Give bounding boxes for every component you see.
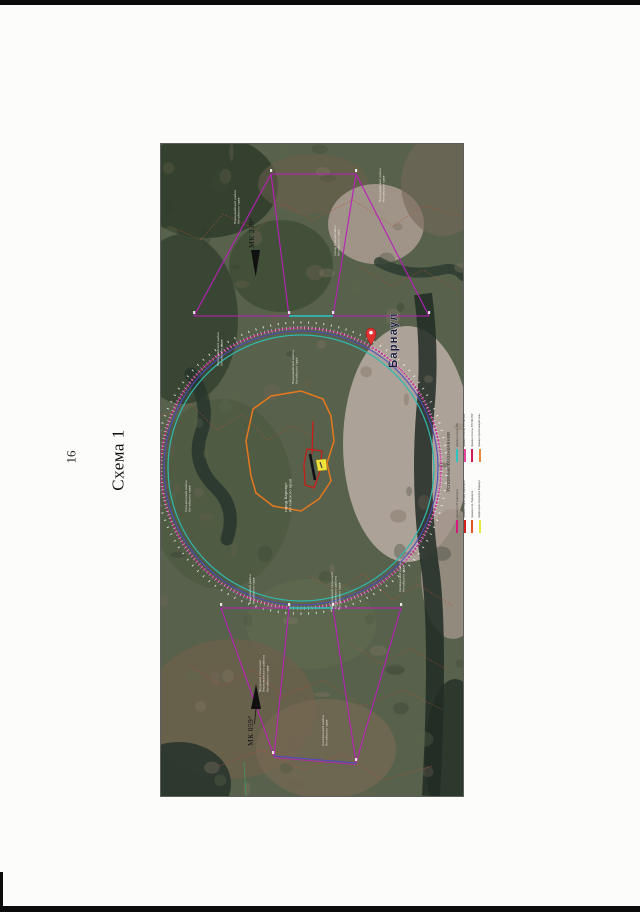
legend-swatch xyxy=(464,520,466,533)
legend-column: граница СЗЗ аэропортаграница территории … xyxy=(455,480,482,533)
legend-label: граница прилегающей зоны xyxy=(478,414,481,448)
area-label: Косихинский районАлтайского края xyxy=(321,715,329,746)
terrain-speck xyxy=(320,174,336,182)
terrain-speck xyxy=(432,547,451,561)
area-label: Калманский районАлтайского края xyxy=(398,562,406,592)
ring-tick-number xyxy=(263,326,264,328)
terrain-speck xyxy=(204,762,220,774)
terrain-speck xyxy=(165,201,173,215)
course-top-label: МК 239° xyxy=(247,217,256,248)
legend-label: граница полосы ВП xyxy=(456,423,459,447)
terrain-speck xyxy=(397,303,404,312)
legend-label: граница полосы ВП МК 239° xyxy=(463,413,466,447)
terrain-speck xyxy=(214,170,229,185)
legend-swatch xyxy=(479,520,481,533)
corner-mark xyxy=(332,311,334,314)
city-label: Барнаул xyxy=(388,312,400,368)
terrain-speck xyxy=(243,782,250,795)
terrain-speck xyxy=(171,552,186,558)
terrain-speck xyxy=(285,779,305,789)
legend-item: граница гор. Барнаула xyxy=(470,480,474,533)
terrain-speck xyxy=(280,145,290,157)
terrain-speck xyxy=(231,544,237,556)
corner-mark xyxy=(355,169,357,172)
corner-mark xyxy=(270,169,272,172)
terrain-speck xyxy=(348,280,364,293)
terrain-speck xyxy=(317,340,326,348)
terrain-speck xyxy=(319,268,335,277)
terrain-speck xyxy=(315,692,331,697)
terrain-speck xyxy=(163,162,175,174)
legend-label: граница гор. Барнаула xyxy=(471,491,474,518)
terrain-speck xyxy=(288,736,299,754)
legend-swatch xyxy=(464,449,466,462)
legend-item: граница полосы ВП МК 059° xyxy=(470,413,474,462)
terrain-speck xyxy=(305,378,314,387)
corner-mark xyxy=(288,311,290,314)
legend-title: Условные обозначения xyxy=(446,387,452,537)
terrain-speck xyxy=(404,393,409,405)
terrain-speck xyxy=(370,646,388,656)
corner-mark xyxy=(193,311,195,314)
legend-columns: граница СЗЗ аэропортаграница территории … xyxy=(455,387,482,537)
terrain-speck xyxy=(200,513,214,522)
terrain-speck xyxy=(424,375,433,383)
legend-item: граница полосы ВП МК 239° xyxy=(463,413,467,462)
legend-swatch xyxy=(479,449,481,462)
terrain-speck xyxy=(378,253,395,268)
terrain-speck xyxy=(387,666,405,675)
terrain-speck xyxy=(202,228,211,245)
terrain-speck xyxy=(244,615,253,626)
terrain-speck xyxy=(222,669,234,682)
legend-item: территория аэропорта Барнаул xyxy=(478,480,482,533)
page-number: 16 xyxy=(64,451,80,464)
legend-label: граница СЗЗ аэропорта xyxy=(456,489,459,518)
course-bottom-label: МК 059° xyxy=(246,715,255,746)
terrain-speck xyxy=(270,312,280,325)
terrain-speck xyxy=(184,671,202,681)
terrain-speck xyxy=(194,488,204,498)
terrain-speck xyxy=(283,617,299,624)
legend-label: граница территории аэропорта xyxy=(463,481,466,518)
corner-mark xyxy=(220,603,222,606)
terrain-speck xyxy=(163,227,177,236)
corner-mark xyxy=(272,751,274,754)
terrain-speck xyxy=(214,775,226,786)
map-legend: Условные обозначения граница СЗЗ аэропор… xyxy=(446,387,504,537)
legend-item: граница территории аэропорта xyxy=(463,480,467,533)
area-label: Павловский районАлтайского края xyxy=(248,574,256,604)
terrain-speck xyxy=(360,366,372,377)
scan-edge-left xyxy=(0,872,3,912)
terrain-speck xyxy=(219,400,232,412)
scan-edge-top xyxy=(0,0,640,5)
legend-swatch xyxy=(456,449,458,462)
terrain-speck xyxy=(390,510,406,523)
corner-mark xyxy=(355,758,357,761)
ring-tick-number xyxy=(441,430,443,431)
legend-item: граница СЗЗ аэропорта xyxy=(455,480,459,533)
terrain-speck xyxy=(235,281,250,288)
terrain-speck xyxy=(406,487,412,497)
terrain-speck xyxy=(422,766,433,777)
corner-mark xyxy=(428,311,430,314)
terrain-speck xyxy=(414,732,433,747)
area-label: город БарнаулАлтайского края xyxy=(283,479,293,512)
scan-edge-bottom xyxy=(0,906,640,912)
legend-swatch xyxy=(471,520,473,533)
terrain-speck xyxy=(280,763,293,773)
terrain-speck xyxy=(195,418,204,428)
terrain-speck xyxy=(233,390,242,403)
legend-column: граница полосы ВПграница полосы ВП МК 23… xyxy=(455,413,482,462)
terrain-speck xyxy=(311,145,328,154)
terrain-speck xyxy=(231,264,240,269)
legend-label: граница полосы ВП МК 059° xyxy=(471,413,474,447)
terrain-speck xyxy=(203,450,208,458)
legend-swatch xyxy=(456,520,458,533)
terrain-speck xyxy=(263,384,281,400)
ring-tick-number xyxy=(441,505,443,506)
legend-item: граница прилегающей зоны xyxy=(478,413,482,462)
page-title: Схема 1 xyxy=(109,429,129,490)
terrain-speck xyxy=(206,393,211,401)
terrain-speck xyxy=(195,701,206,712)
corner-mark xyxy=(288,603,290,606)
ring-tick-number xyxy=(338,326,339,328)
terrain-speck xyxy=(258,546,273,562)
corner-mark xyxy=(400,603,402,606)
satellite-scheme-image: Первомайский районАлтайского краяПервома… xyxy=(160,143,464,797)
legend-swatch xyxy=(471,449,473,462)
legend-item: граница полосы ВП xyxy=(455,413,459,462)
terrain-speck xyxy=(393,702,409,714)
terrain-speck xyxy=(393,223,403,230)
terrain-speck xyxy=(174,484,181,494)
legend-label: территория аэропорта Барнаул xyxy=(478,480,481,518)
terrain-speck xyxy=(365,614,374,624)
